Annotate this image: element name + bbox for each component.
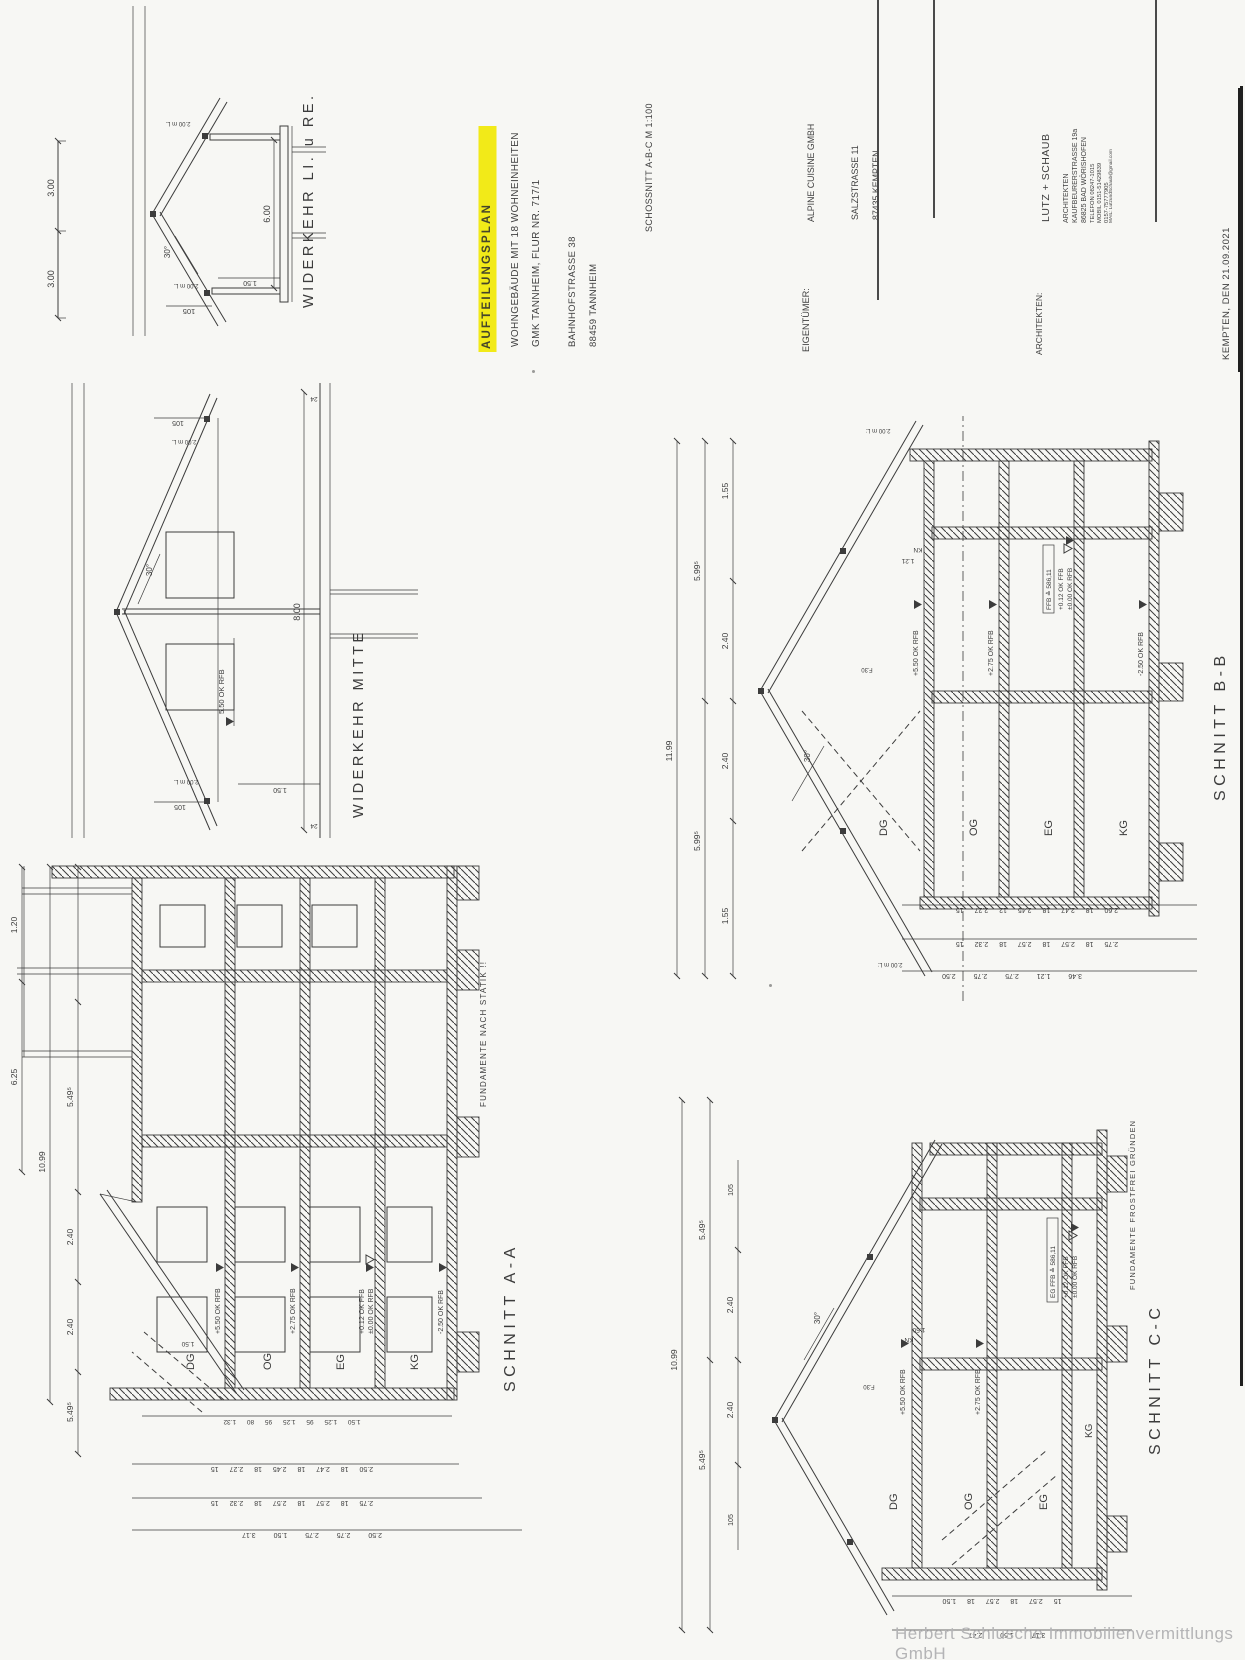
drawing-schnitt-cc: 10.99 5.49⁵ 5.49⁵ 2.40 2.40 105 105 15 2… (662, 1075, 1172, 1660)
level-label: +5.50 OK RFB (913, 630, 920, 676)
angle-label: 30° (163, 246, 172, 258)
wm-base (320, 383, 418, 838)
dim-chain: 2.50 2.75 2.75 1.50 3.17 (242, 1531, 382, 1538)
plan-subtitle-line2: GMK TANNHEIM, FLUR NR. 717/1 (526, 27, 547, 347)
wm-dims: 105 105 2.00 m L. 2.00 m L. 30° 1.50 8.0… (138, 389, 320, 833)
dim-label: 2.00 m L: (877, 961, 902, 967)
floor-label: DG (878, 820, 890, 837)
dim-label: 1.21 (901, 557, 914, 564)
level-label: +0.12 OK FFB (359, 1289, 366, 1334)
section-title: SCHNITT C-C (1147, 1304, 1164, 1455)
plan-subtitle-block: WOHNGEBÄUDE MIT 18 WOHNEINHEITEN GMK TAN… (505, 27, 547, 347)
aa-structure (17, 866, 479, 1412)
dim-label: 6.00 (262, 205, 272, 223)
foundation-note: FUNDAMENTE NACH STATIK !! (479, 961, 488, 1107)
architect-address-line1: KAUFBEURERSTRASSE 19a (1071, 95, 1080, 223)
dim-label: 2.00 m L. (173, 778, 198, 784)
angle-label: 30° (813, 1312, 822, 1324)
dim-label: 2.00 m L. (165, 120, 190, 126)
date-line: KEMPTEN, DEN 21.09.2021 (1222, 130, 1232, 360)
dim-label: 5.49⁵ (65, 1402, 75, 1422)
scan-edge-bar (1238, 88, 1243, 372)
architect-sub: ARCHITEKTEN (1062, 95, 1071, 223)
wm-main-wall (72, 383, 84, 838)
owner-name: ALPINE CUISINE GMBH (807, 44, 816, 222)
dim-label: 1.55 (720, 482, 730, 499)
foundation-note: FUNDAMENTE FROSTFREI GRÜNDEN (1128, 1120, 1137, 1290)
dim-label: 10.99 (669, 1349, 679, 1371)
scan-speck (769, 984, 772, 987)
section-title: SCHNITT B-B (1212, 651, 1229, 801)
dim-label: 5.49⁵ (697, 1220, 707, 1240)
dim-label: 2.00 m L. (171, 438, 196, 444)
aa-height-chains: 2.50 18 2.47 18 2.45 18 2.27 15 2.75 18 … (132, 1464, 522, 1538)
dim-label: 3.00 (46, 179, 56, 197)
dim-label: 2.40 (65, 1228, 75, 1245)
architect-name: LUTZ + SCHAUB (1041, 92, 1052, 222)
drawing-widerkehr-li-re: 3.00 3.00 (36, 6, 326, 336)
wlr-roof (150, 98, 227, 326)
titleblock-divider (877, 0, 879, 300)
dim-chain: 2.75 18 2.57 18 2.57 18 2.32 15 (211, 1499, 373, 1506)
floor-label: DG (888, 1494, 900, 1511)
dim-label: 8.00 (292, 603, 302, 621)
floor-label: KG (1118, 820, 1130, 836)
floor-label: OG (968, 819, 980, 836)
dim-label: 105 (174, 803, 186, 810)
floor-label: OG (262, 1353, 274, 1370)
sheet-name: SCHOSSNITT A-B-C M 1:100 (645, 2, 654, 232)
dim-chain: 2.75 18 2.57 18 2.57 18 2.32 15 (956, 940, 1118, 947)
dim-label: 11.99 (664, 740, 674, 761)
architect-address-block: ARCHITEKTEN KAUFBEURERSTRASSE 19a 86825 … (1062, 95, 1089, 223)
dim-label: 2.40 (725, 1296, 735, 1313)
dim-label: 2.40 (720, 632, 730, 649)
dim-label: 1.50 (243, 279, 257, 286)
aa-dim-top: 6.25 1.20 10.99 5.49⁵ 2.40 2.40 5.49⁵ (9, 864, 81, 1457)
drawing-title: WIDERKEHR MITTE (351, 629, 367, 818)
dim-chain: 15 2.57 18 2.57 18 1.50 (942, 1597, 1061, 1604)
cc-structure (882, 1130, 1127, 1590)
site-address-line2: 88459 TANNHEIM (583, 177, 604, 347)
dim-label: F.30 (861, 666, 873, 672)
wlr-dims: 105 2.00 m L. 2.00 m L. 30° 1.50 6.00 (163, 120, 280, 316)
level-label: +2.75 OK RFB (290, 1288, 297, 1334)
bb-small-dims: 1.21 KN F.30 30° 2.00 m L: 2.00 m L: (792, 427, 923, 967)
dim-label: KN (913, 546, 922, 553)
wm-roof (114, 394, 218, 830)
floor-label: DG (185, 1354, 197, 1371)
dim-label: 1.50 (273, 786, 287, 793)
wm-level-marker: 5.50 OK RFB (217, 638, 234, 726)
architect-mail: MAIL: LutzundSchaub@gmail.com (1110, 110, 1115, 223)
dim-label: 2.00 m L. (173, 282, 198, 288)
dim-label: 5.99⁵ (692, 561, 702, 581)
wlr-main-wall (133, 6, 145, 336)
angle-label: 30° (803, 750, 812, 762)
level-label: EG FFB ≙ 586,11 (1049, 1246, 1057, 1298)
owner-address-block: SALZSTRASSE 11 87435 KEMPTEN (845, 92, 887, 220)
dim-label: 105 (728, 1514, 735, 1526)
drawing-widerkehr-mitte: 5.50 OK RFB 105 105 2.00 m L. 2.00 m L. … (58, 383, 418, 838)
bb-dim-top: 11.99 5.99⁵ 5.99⁵ 2.40 2.40 1.55 1.55 (664, 438, 736, 979)
dim-label: 2.40 (65, 1318, 75, 1335)
dim-label: 3.00 (46, 270, 56, 288)
dim-label: 1.55 (720, 907, 730, 924)
architect-telefon: TELEFON 08247-1015 (1090, 128, 1097, 223)
level-label: +5.50 OK RFB (900, 1369, 907, 1415)
architect-mobil1: MOBIL 0151-51429839 (1097, 128, 1104, 223)
floor-label: KG (1084, 1423, 1095, 1438)
dim-label: 105 (183, 307, 196, 316)
dim-label: 1.20 (9, 916, 19, 933)
level-label: +2.75 OK RFB (988, 630, 995, 676)
level-label: ±0.00 OK RFB (1067, 568, 1074, 610)
floor-label: OG (963, 1493, 975, 1510)
dim-label: 105 (728, 1184, 735, 1196)
cc-small-dims: 30° F.30 KN 1.50 (804, 1308, 925, 1389)
site-address-block: BAHNHOFSTRASSE 38 88459 TANNHEIM (562, 177, 604, 347)
aa-level-markers: +5.50 OK RFB +2.75 OK RFB +0.12 OK FFB ±… (215, 1255, 447, 1334)
dim-label: 5.99⁵ (692, 831, 702, 851)
level-label: +0.12 OK FFB (1058, 568, 1065, 610)
level-label: +2.75 OK RFB (975, 1369, 982, 1415)
owner-label: EIGENTÜMER: (802, 245, 811, 352)
angle-label: 30° (145, 564, 154, 576)
dim-chain: 2.50 18 2.47 18 2.45 18 2.27 15 (211, 1465, 373, 1472)
titleblock-divider (933, 0, 935, 218)
site-address-line1: BAHNHOFSTRASSE 38 (562, 177, 583, 347)
drawing-title: WIDERKEHR LI. u RE. (301, 92, 317, 308)
cc-dim-top: 10.99 5.49⁵ 5.49⁵ 2.40 2.40 105 105 (669, 1097, 741, 1633)
dim-label: 1.50 (181, 1340, 194, 1347)
level-label: +0.12 OK FFB (1063, 1256, 1070, 1298)
level-label: -2.50 OK RFB (438, 1290, 445, 1334)
bb-structure (910, 441, 1183, 916)
plan-subtitle-line1: WOHNGEBÄUDE MIT 18 WOHNEINHEITEN (505, 27, 526, 347)
dim-label: 6.25 (9, 1068, 19, 1085)
plan-sheet: 3.00 3.00 (0, 0, 1245, 1660)
dim-label: 2.40 (720, 752, 730, 769)
bb-level-markers: +5.50 OK RFB +2.75 OK RFB FFB ≙ 586,11 +… (913, 536, 1147, 676)
dim-label: 2.00 m L: (865, 427, 890, 433)
level-label: +5.50 OK RFB (215, 1288, 222, 1334)
titleblock-divider (1155, 0, 1157, 222)
section-title: SCHNITT A-A (502, 1243, 519, 1392)
floor-label: EG (1043, 820, 1055, 836)
dim-label: 1.50 (912, 1326, 925, 1333)
level-label: ±0.00 OK RFB (1072, 1256, 1079, 1298)
dim-label: 24 (310, 822, 318, 829)
dim-label: F.30 (863, 1383, 875, 1389)
floor-label: EG (335, 1354, 347, 1370)
watermark-text: Herbert Schlusche Immobilienvermittlungs… (895, 1624, 1245, 1660)
owner-address-line1: SALZSTRASSE 11 (845, 92, 866, 220)
dim-label: 2.40 (725, 1401, 735, 1418)
level-label: -2.50 OK RFB (1138, 632, 1145, 676)
architect-address-line2: 86825 BAD WÖRISHOFEN (1080, 95, 1089, 223)
architect-label: ARCHITEKTEN: (1035, 247, 1044, 355)
dim-label: 10.99 (37, 1151, 47, 1173)
dim-label: 5.49⁵ (65, 1087, 75, 1107)
dim-chain: 1.50 1.25 95 1.25 95 80 1.32 (223, 1418, 361, 1425)
floor-label: EG (1038, 1494, 1050, 1510)
drawing-schnitt-aa: 6.25 1.20 10.99 5.49⁵ 2.40 2.40 5.49⁵ 2.… (0, 862, 532, 1562)
plan-title: AUFTEILUNGSPLAN (479, 126, 497, 352)
dim-label: 24 (310, 395, 318, 402)
dim-label: 105 (172, 419, 184, 426)
floor-label: KG (409, 1354, 421, 1370)
level-label: 5.50 OK RFB (217, 669, 226, 714)
drawing-schnitt-bb: 11.99 5.99⁵ 5.99⁵ 2.40 2.40 1.55 1.55 2.… (652, 413, 1242, 1001)
dim-label: 5.49⁵ (697, 1450, 707, 1470)
level-label: ±0.00 OK RFB (368, 1288, 375, 1334)
level-label: FFB ≙ 586,11 (1045, 569, 1053, 610)
wlr-dim-top: 3.00 3.00 (46, 138, 66, 321)
scan-speck (532, 370, 535, 373)
